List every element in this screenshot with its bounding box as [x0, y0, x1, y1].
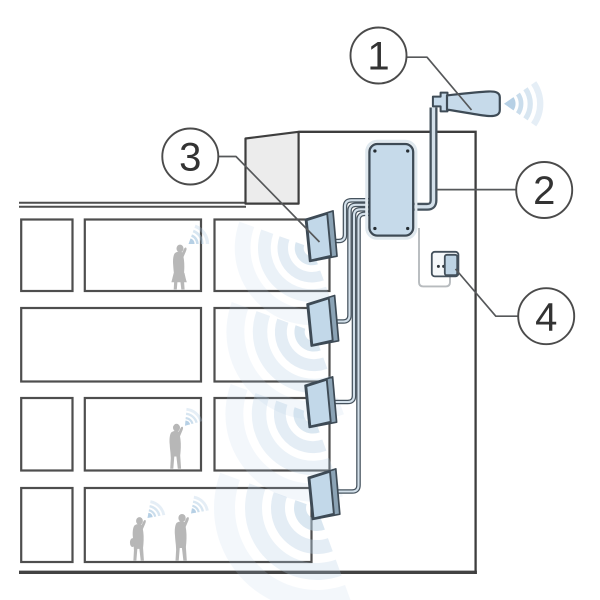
callout-label-2: 2	[533, 169, 555, 213]
skirt	[171, 273, 186, 283]
room-f3-left	[21, 398, 72, 471]
room-f3-mid	[85, 398, 201, 471]
room-f4-left	[21, 488, 72, 562]
callout-label-3: 3	[179, 136, 201, 180]
diagram-canvas: 1 2 3 4	[0, 0, 600, 600]
power-plug	[445, 255, 457, 275]
screw-icon	[373, 149, 376, 152]
building-signal-diagram: 1 2 3 4	[0, 0, 600, 600]
indoor-antenna-3	[305, 377, 337, 428]
room-f2-left	[21, 308, 201, 382]
screw-icon	[406, 227, 409, 230]
screw-icon	[406, 149, 409, 152]
indoor-antenna-1	[306, 211, 338, 262]
room-f1-left	[21, 220, 72, 292]
indoor-antenna-4	[308, 469, 340, 520]
indoor-antenna-2	[307, 296, 339, 347]
screw-icon	[373, 227, 376, 230]
callout-label-4: 4	[535, 295, 557, 339]
shoulder-bag	[130, 538, 135, 547]
socket-hole	[437, 265, 440, 268]
callout-label-1: 1	[367, 35, 389, 79]
signal-booster	[367, 141, 416, 238]
booster-body	[369, 144, 413, 236]
